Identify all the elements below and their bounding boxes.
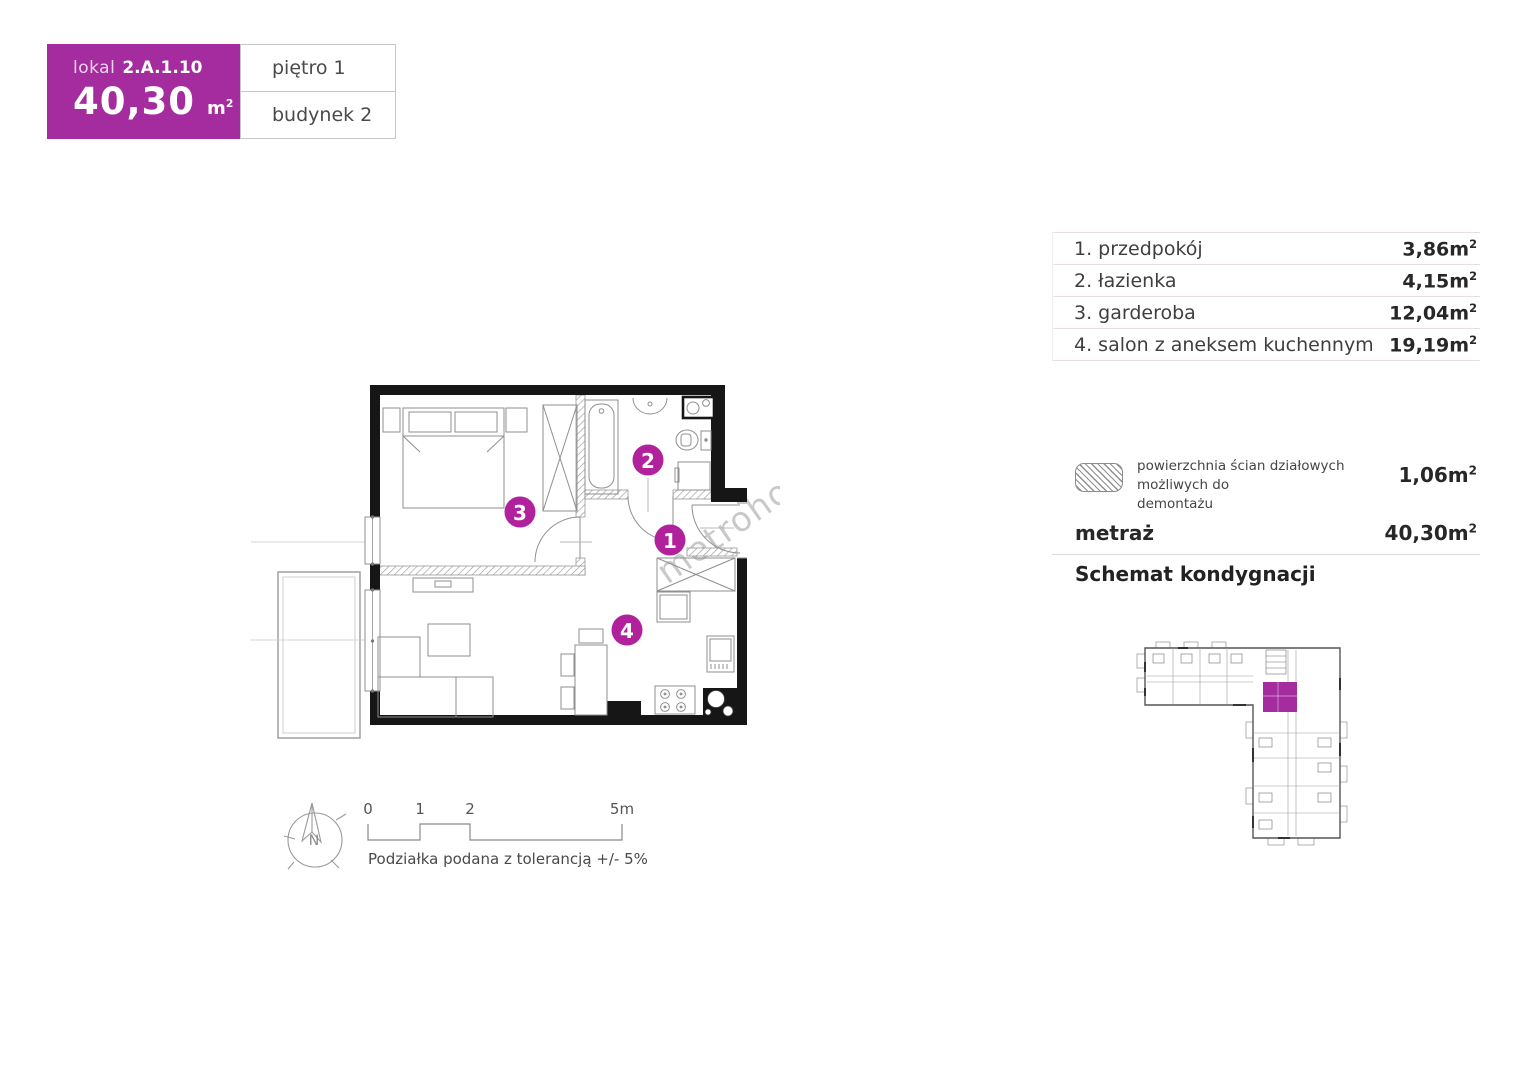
nightstand: [506, 408, 527, 432]
coffee-table: [428, 624, 470, 656]
demountable-partition-row: powierzchnia ścian działowych możliwych …: [1052, 457, 1480, 514]
scale-note: Podziałka podana z tolerancją +/- 5%: [368, 850, 648, 868]
unit-area-line: 40,30m2: [73, 80, 240, 123]
building-outline: [1145, 648, 1340, 838]
washbasin: [633, 398, 667, 414]
room-number-4: 4: [612, 615, 643, 646]
room-label: 3. garderoba: [1053, 302, 1196, 324]
room-number-1: 1: [655, 525, 686, 556]
room-area: 4,15m2: [1402, 269, 1480, 292]
legend-block: powierzchnia ścian działowych możliwych …: [1052, 457, 1480, 586]
building-schematic: [1128, 638, 1353, 853]
hatch-swatch-icon: [1075, 463, 1123, 492]
kitchen-cabinet: [657, 592, 690, 622]
bathtub: [585, 400, 618, 494]
sofa: [378, 637, 493, 717]
bed: [403, 408, 504, 508]
svg-text:1: 1: [663, 529, 677, 553]
washer: [678, 462, 710, 490]
scale-2: 2: [465, 800, 475, 818]
room-number-2: 2: [633, 445, 664, 476]
room-label: 1. przedpokój: [1053, 238, 1203, 260]
scale-bar: 0 1 2 5m: [363, 800, 634, 840]
tv-stand: [413, 578, 473, 592]
room-label: 4. salon z aneksem kuchennym: [1053, 334, 1374, 356]
scale-0: 0: [363, 800, 373, 818]
unit-area-value: 40,30: [73, 80, 195, 123]
unit-card: lokal2.A.1.10 40,30m2 piętro 1 budynek 2: [47, 44, 396, 139]
partition-description: powierzchnia ścian działowych możliwych …: [1137, 457, 1389, 514]
compass-north-label: N: [309, 833, 319, 849]
svg-text:3: 3: [513, 501, 527, 525]
legend-divider: [1052, 554, 1480, 555]
metraz-value: 40,30m2: [1385, 521, 1477, 545]
metraz-label: metraż: [1075, 521, 1154, 545]
table-row: 4. salon z aneksem kuchennym 19,19m2: [1053, 329, 1480, 361]
schema-title: Schemat kondygnacji: [1052, 562, 1480, 586]
nightstand: [383, 408, 400, 432]
room-area-table: 1. przedpokój 3,86m2 2. łazienka 4,15m2 …: [1052, 232, 1480, 361]
room-area: 3,86m2: [1402, 237, 1480, 260]
metraz-row: metraż 40,30m2: [1052, 521, 1480, 545]
room-area: 19,19m2: [1389, 333, 1480, 356]
shaft-sink: [683, 397, 714, 418]
scale-1: 1: [415, 800, 425, 818]
oven: [707, 636, 734, 672]
partition-area: 1,06m2: [1398, 457, 1480, 487]
scale-5m: 5m: [610, 800, 634, 818]
door-garderoba: [535, 517, 580, 562]
compass: N: [284, 803, 346, 869]
stove: [655, 686, 695, 714]
dining-set: [561, 629, 607, 715]
svg-text:4: 4: [620, 619, 634, 643]
unit-number-line: lokal2.A.1.10: [73, 58, 240, 78]
building-label: budynek 2: [241, 91, 395, 138]
floor-plan: metrohouse: [250, 380, 780, 880]
unit-card-info-panel: piętro 1 budynek 2: [240, 44, 396, 139]
lokal-number: 2.A.1.10: [122, 58, 202, 78]
table-row: 2. łazienka 4,15m2: [1053, 265, 1480, 297]
table-row: 1. przedpokój 3,86m2: [1053, 233, 1480, 265]
svg-text:2: 2: [641, 449, 655, 473]
toilet: [676, 430, 711, 450]
lokal-label: lokal: [73, 58, 115, 78]
balcony: [278, 572, 360, 738]
room-number-3: 3: [505, 497, 536, 528]
room-label: 2. łazienka: [1053, 270, 1177, 292]
unit-area-unit: m2: [207, 98, 233, 119]
room-area: 12,04m2: [1389, 301, 1480, 324]
unit-card-accent-panel: lokal2.A.1.10 40,30m2: [47, 44, 240, 139]
wardrobe: [543, 405, 577, 511]
highlighted-unit: [1263, 682, 1297, 712]
table-row: 3. garderoba 12,04m2: [1053, 297, 1480, 329]
floor-label: piętro 1: [241, 45, 395, 91]
